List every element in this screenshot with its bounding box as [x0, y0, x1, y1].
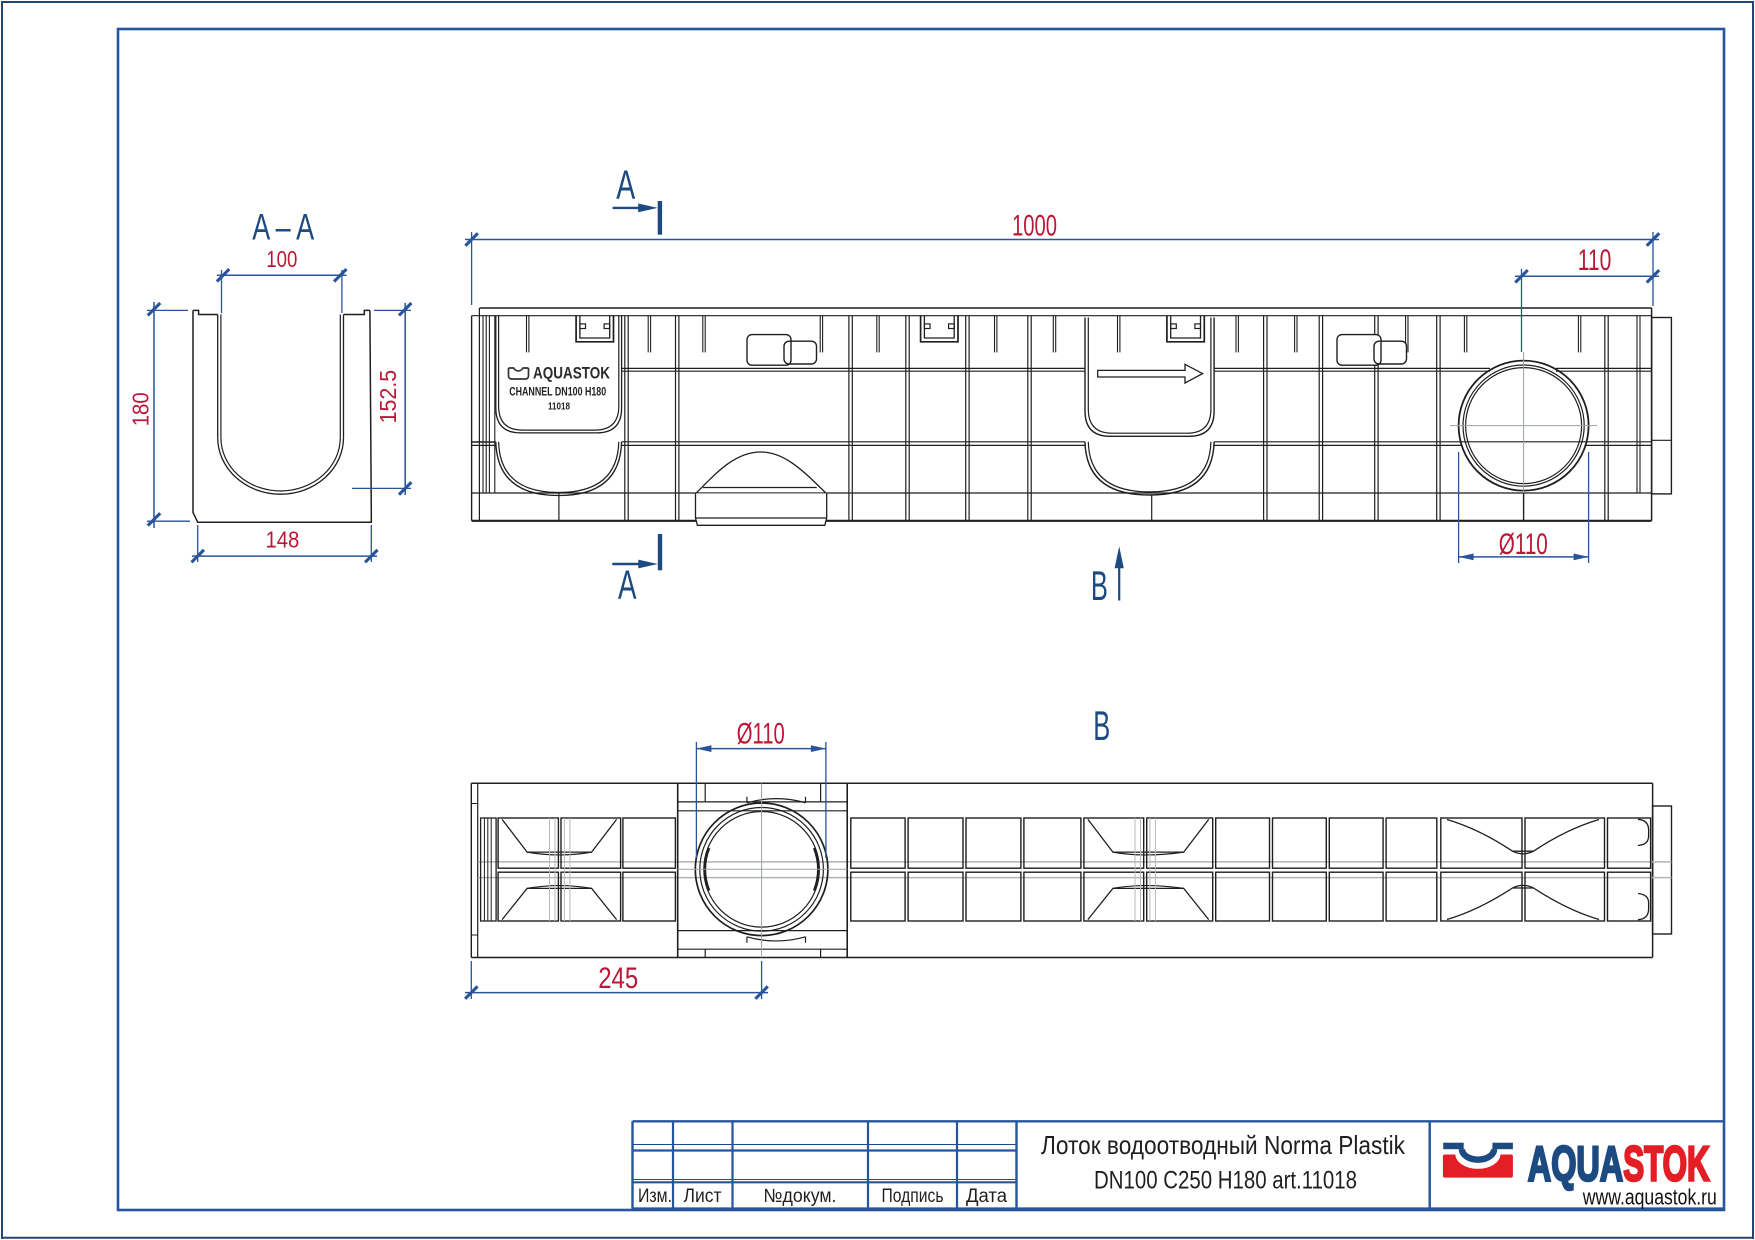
svg-text:148: 148 [265, 527, 299, 553]
svg-text:Ø110: Ø110 [1499, 528, 1548, 561]
svg-text:Лоток водоотводный Norma Plast: Лоток водоотводный Norma Plastik [1041, 1130, 1406, 1160]
svg-text:B: B [1091, 562, 1108, 609]
svg-text:Лист: Лист [684, 1186, 722, 1207]
svg-text:245: 245 [598, 962, 638, 995]
svg-text:Ø110: Ø110 [737, 718, 785, 751]
svg-text:Подпись: Подпись [882, 1186, 944, 1207]
svg-text:DN100 C250 H180 art.11018: DN100 C250 H180 art.11018 [1094, 1167, 1357, 1195]
svg-text:100: 100 [266, 246, 297, 272]
svg-text:110: 110 [1578, 244, 1612, 277]
svg-text:CHANNEL DN100 H180: CHANNEL DN100 H180 [509, 387, 606, 399]
svg-text:№докум.: №докум. [764, 1186, 837, 1207]
svg-text:A: A [616, 162, 635, 208]
svg-text:Изм.: Изм. [638, 1186, 672, 1207]
svg-text:180: 180 [128, 392, 154, 426]
svg-text:11018: 11018 [548, 401, 570, 412]
svg-text:B: B [1093, 702, 1110, 749]
svg-text:Дата: Дата [966, 1186, 1007, 1207]
svg-text:A – A: A – A [252, 207, 314, 248]
svg-text:AQUASTOK: AQUASTOK [533, 365, 610, 383]
svg-text:A: A [618, 561, 637, 607]
svg-text:1000: 1000 [1012, 209, 1057, 242]
svg-text:www.aquastok.ru: www.aquastok.ru [1582, 1185, 1717, 1210]
svg-text:152.5: 152.5 [375, 370, 401, 424]
